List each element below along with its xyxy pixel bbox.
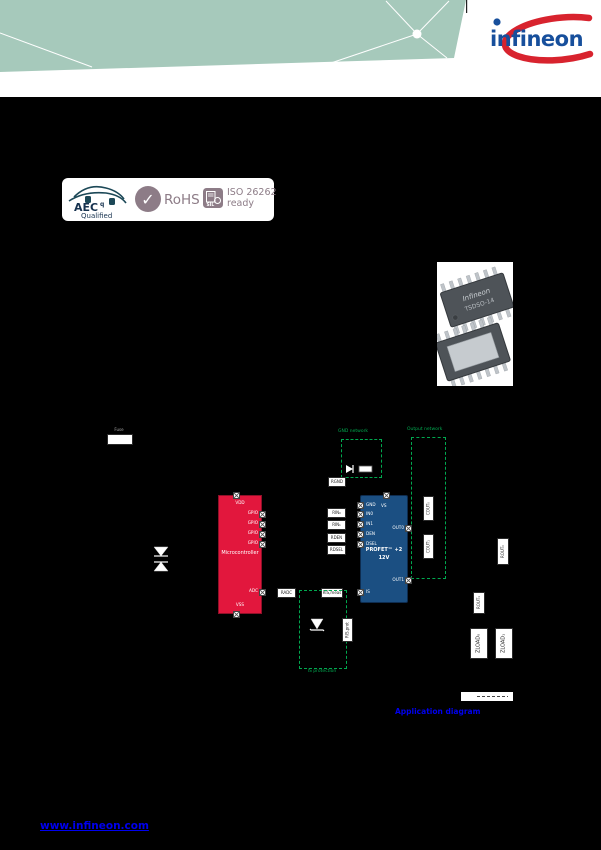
- mcu-pin-vss: VSS: [224, 603, 256, 607]
- sil-text: SIL: [207, 202, 215, 208]
- capacitor-cout0: COUT₀: [423, 496, 434, 521]
- iso-26262-icon: SIL: [203, 188, 223, 208]
- pad-profet-is: [357, 589, 364, 596]
- load-zload1: ZLOAD₁: [495, 628, 513, 659]
- pad-mcu-adc: [259, 589, 266, 596]
- pad-profet-dsel: [357, 541, 364, 548]
- mcu-pin-vdd: VDD: [224, 501, 256, 505]
- profet-title: PROFET™ +2: [360, 548, 408, 553]
- mcu-pin-gpio3: GPIO: [238, 541, 258, 545]
- profet-pin-in0: IN0: [366, 512, 373, 516]
- pad-profet-in0: [357, 511, 364, 518]
- logo-wordmark: infineon: [490, 27, 583, 51]
- logo-dot: [493, 18, 500, 25]
- ground-rail: [461, 692, 513, 701]
- package-photo: Infineon TSDSO-14: [437, 262, 513, 386]
- profet-pin-is: IS: [366, 590, 370, 594]
- profet-pin-vs: VS: [381, 504, 387, 508]
- mcu-pin-gpio2: GPIO: [238, 531, 258, 535]
- pad-mcu-gpio2: [259, 531, 266, 538]
- pad-profet-in1: [357, 521, 364, 528]
- resistor-rgnd: RGND: [328, 477, 346, 487]
- is-protection-caption: IS protection: [299, 670, 345, 675]
- output-network-caption: Output network: [407, 428, 442, 433]
- mcu-pin-adc: ADC: [240, 589, 258, 593]
- pad-mcu-gpio3: [259, 541, 266, 548]
- pad-profet-out1: [405, 577, 412, 584]
- check-glyph: ✓: [141, 190, 154, 209]
- infineon-logo: infineon: [468, 8, 598, 64]
- profet-pin-den: DEN: [366, 532, 375, 536]
- pad-profet-den: [357, 531, 364, 538]
- aec-qualified-logo: AEC q Qualified: [66, 180, 128, 220]
- tvs-diode-icon: [150, 546, 172, 572]
- rohs-label: RoHS: [164, 192, 200, 208]
- aec-qualified-text: Qualified: [81, 212, 112, 220]
- profet-pin-dsel: DSEL: [366, 542, 377, 546]
- resistor-rdsel: RDSEL: [327, 545, 346, 555]
- pad-profet-vs: [383, 492, 390, 499]
- mcu-title: Microcontroller: [218, 551, 262, 556]
- iso-label: ISO 26262 ready: [227, 187, 277, 209]
- infineon-website-link[interactable]: www.infineon.com: [40, 820, 149, 832]
- chip-top-view: Infineon TSDSO-14: [438, 265, 513, 335]
- iso-line1: ISO 26262: [227, 187, 277, 198]
- figure-caption-link[interactable]: Application diagram: [395, 707, 480, 716]
- pad-mcu-vss: [233, 611, 240, 618]
- is-zener-icon: [307, 616, 327, 636]
- capacitor-cout1: COUT₁: [423, 534, 434, 559]
- pad-profet-gnd: [357, 502, 364, 509]
- profet-pin-out0: OUT0: [383, 526, 404, 530]
- pad-mcu-gpio0: [259, 511, 266, 518]
- resistor-risprot: RIS,prot: [342, 618, 353, 642]
- resistor-rout0: ROUT₀: [497, 538, 509, 565]
- teal-band-shape: [0, 0, 466, 72]
- profet-pin-in1: IN1: [366, 522, 373, 526]
- resistor-rin1: RIN₁: [327, 520, 346, 530]
- pad-mcu-vdd: [233, 492, 240, 499]
- resistor-radc: RADC: [277, 588, 296, 598]
- pad-profet-out0: [405, 525, 412, 532]
- resistor-rden: RDEN: [327, 533, 346, 543]
- pad-mcu-gpio1: [259, 521, 266, 528]
- resistor-rin0: RIN₀: [327, 508, 346, 518]
- check-icon: ✓: [135, 186, 161, 212]
- fuse-symbol: [107, 434, 133, 445]
- fuse-label: Fuse: [105, 428, 133, 432]
- network-node-dot: [413, 30, 422, 39]
- profet-voltage: 12V: [360, 556, 408, 561]
- load-zload0: ZLOAD₀: [470, 628, 488, 659]
- profet-pin-gnd: GND: [366, 503, 376, 507]
- iso-line2: ready: [227, 198, 277, 209]
- aec-sup: q: [100, 201, 104, 208]
- gnd-diode-resistor: [344, 464, 378, 474]
- datasheet-page: infineon AEC q Qualified ✓ RoHS SIL ISO …: [0, 0, 601, 850]
- gnd-network-caption: GND network: [338, 430, 368, 435]
- resistor-rout1: ROUT₁: [473, 592, 485, 614]
- profet-pin-out1: OUT1: [383, 578, 404, 582]
- mcu-pin-gpio0: GPIO: [238, 511, 258, 515]
- mcu-pin-gpio1: GPIO: [238, 521, 258, 525]
